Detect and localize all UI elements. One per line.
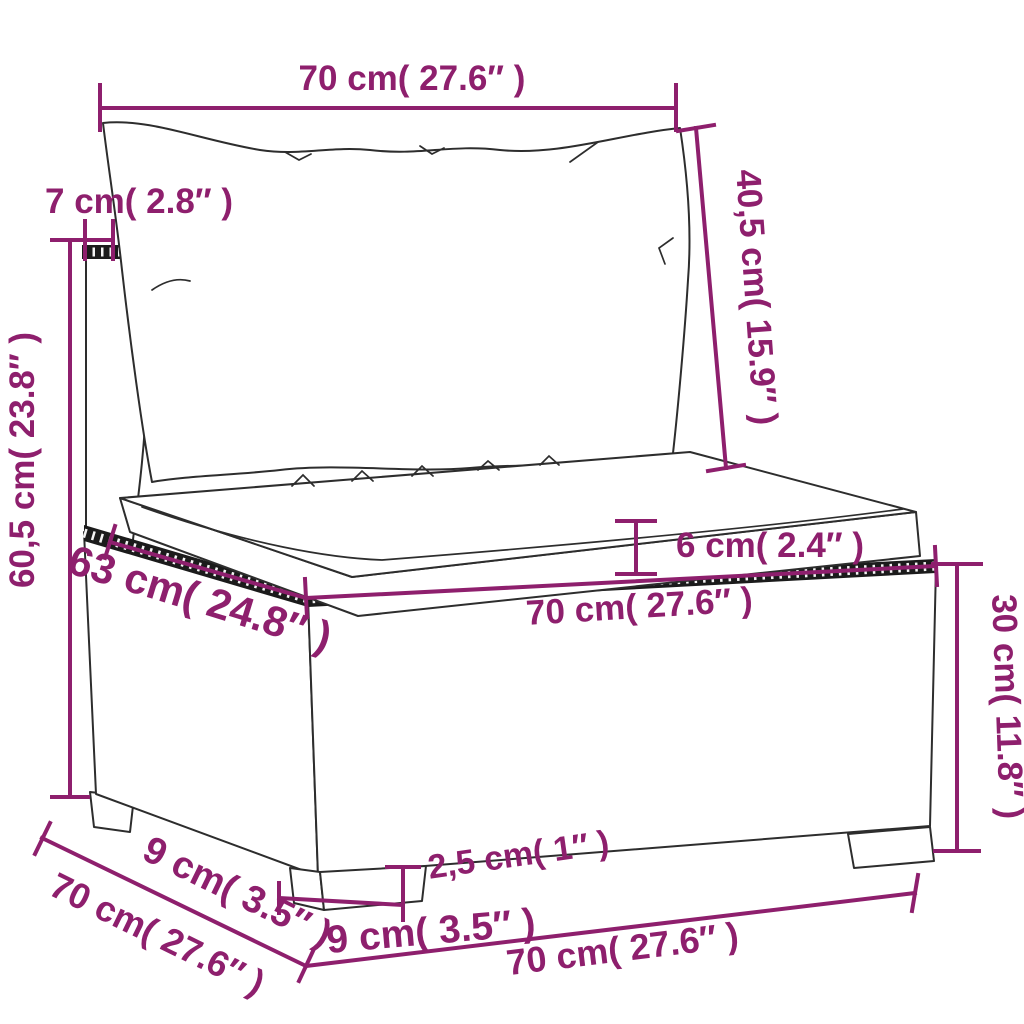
dim-label-back-frame-depth: 7 cm( 2.8″ ) [45,182,233,221]
dim-back-width-top: 70 cm( 27.6″ ) [100,59,676,130]
dim-label-front-width-bottom: 70 cm( 27.6″ ) [504,914,741,983]
sofa-dimension-drawing: 70 cm( 27.6″ ) 7 cm( 2.8″ ) 40,5 cm( 15.… [0,0,1024,1024]
dim-label-back-width-top: 70 cm( 27.6″ ) [299,59,526,98]
dim-back-total-height: 60,5 cm( 23.8″ ) [3,240,88,797]
furniture-drawing [82,122,936,910]
dim-label-back-cushion-height: 40,5 cm( 15.9″ ) [728,168,785,426]
dimension-diagram: 70 cm( 27.6″ ) 7 cm( 2.8″ ) 40,5 cm( 15.… [0,0,1024,1024]
foot-front-right [848,827,934,868]
dim-label-seat-cushion-thickness: 6 cm( 2.4″ ) [676,526,864,565]
back-cushion [103,122,690,482]
dim-label-base-height: 30 cm( 11.8″ ) [984,594,1024,820]
dim-base-height: 30 cm( 11.8″ ) [933,564,1024,851]
dim-label-back-total-height: 60,5 cm( 23.8″ ) [3,332,42,588]
dim-back-cushion-height: 40,5 cm( 15.9″ ) [678,125,785,471]
